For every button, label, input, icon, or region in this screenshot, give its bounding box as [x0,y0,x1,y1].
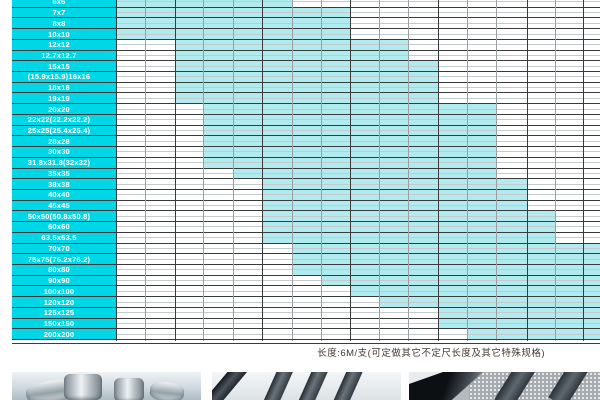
row-label: 18x18 [12,82,116,93]
grid-column-line [175,0,176,341]
row-label: 19x19 [12,92,116,103]
grid-column-line [527,0,528,341]
flat-steel-bars-photo [212,372,401,400]
row-label: 50x50(50.8x50.8) [12,210,116,221]
grid-column-line [233,0,234,341]
steel-bar-shape [212,372,248,400]
row-label: 120x120 [12,296,116,307]
steel-cylinder-shape [149,380,185,400]
steel-cylinder-shape [114,378,144,400]
grid-column-line [350,0,351,341]
steel-bar-shape [328,372,363,400]
grid-column-line [496,0,497,341]
grid-column-line [321,0,322,341]
row-label: 6x6 [12,0,116,7]
row-label: 63.5x63.5 [12,232,116,243]
round-steel-bars-photo [12,372,201,400]
steel-bar-shape [294,372,329,400]
grid-column-line [438,0,439,341]
grid-column-line [379,0,380,341]
grid-column-line [583,0,584,341]
row-label: 90x90 [12,275,116,286]
row-label: 60x60 [12,221,116,232]
row-label: 75x75(76.2x76.2) [12,253,116,264]
grid-column-line [145,0,146,341]
row-label: 31.8x31.8(32x32) [12,157,116,168]
row-label: 80x80 [12,264,116,275]
row-label: 150x150 [12,318,116,329]
row-label: 8x8 [12,17,116,28]
row-label: 40x40 [12,189,116,200]
table-bottom-border [12,343,600,344]
table-bottom-border [12,339,600,340]
row-label: 20x20 [12,103,116,114]
row-label: 45x45 [12,200,116,211]
row-label: 125x125 [12,307,116,318]
row-label: 35x35 [12,168,116,179]
row-label: 7x7 [12,7,116,18]
row-label: 30x30 [12,146,116,157]
grid-column-line [292,0,293,341]
row-label: 12.7x12.7 [12,50,116,61]
row-label: 25x25(25.4x25.4) [12,125,116,136]
grid-column-line [555,0,556,341]
product-photos [0,372,600,400]
row-label: 70x70 [12,243,116,254]
grid-column-line [262,0,263,341]
row-label: 22x22(22.2x22.2) [12,114,116,125]
grid-column-line [467,0,468,341]
length-note: 长度:6M/支(可定做其它不定尺长度及其它特殊规格) [317,345,545,359]
row-label: 200x200 [12,328,116,339]
row-label: 100x100 [12,285,116,296]
grid-column-line [408,0,409,341]
row-label: (15.9x15.9)16x16 [12,71,116,82]
angle-steel-blocks-photo [409,372,600,400]
row-label: 15x15 [12,60,116,71]
grid-column-line [203,0,204,341]
steel-bar-shape [260,372,295,400]
steel-cylinder-shape [64,374,102,400]
spec-sheet: 6x67x78x810x1012x1212.7x12.715x15(15.9x1… [0,0,600,400]
row-label: 28x28 [12,135,116,146]
grid-column-line [116,0,117,341]
row-label: 10x10 [12,28,116,39]
row-label: 38x38 [12,178,116,189]
row-label: 12x12 [12,39,116,50]
size-availability-table: 6x67x78x810x1012x1212.7x12.715x15(15.9x1… [0,0,600,345]
